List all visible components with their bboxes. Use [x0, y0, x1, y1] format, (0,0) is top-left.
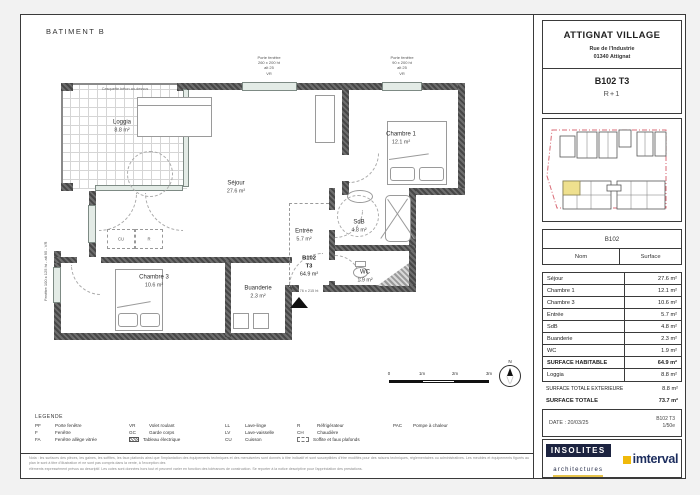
date-block: DATE : 20/03/25 B102 T3 1/50e: [542, 409, 682, 437]
room-label-chambre1: Chambre 112.1 m²: [386, 132, 416, 147]
scale-tick: 3m: [486, 371, 492, 376]
table-unit-header: B102: [542, 229, 682, 249]
kitchen-cooktop-box: CU: [107, 229, 135, 249]
scale-tick: 2m: [452, 371, 458, 376]
floor-plan: Porte fenêtre 260 x 200 ht alt 25 VR Por…: [37, 55, 519, 397]
compass-needle-icon: [507, 376, 513, 384]
entry-door-dim: 76 x 215 ht: [300, 289, 319, 293]
window-chambre3-left: [53, 267, 61, 303]
legend-item: FFenêtre: [35, 430, 119, 435]
legend-item: PFPorte fenêtre: [35, 423, 119, 428]
kitchen-label-r: R: [136, 237, 162, 242]
legend-item: CUCuisson: [225, 437, 287, 442]
pillow: [118, 313, 138, 327]
pillow: [140, 313, 160, 327]
legend-column: PACPompe à chaleur: [393, 423, 465, 442]
table-row: SdB4.8 m²: [543, 321, 681, 333]
scale-segment: [422, 380, 455, 383]
scale-tick: 0: [388, 371, 390, 376]
open-boundary-sejour-entree: [289, 203, 290, 285]
col-name: Nom: [543, 249, 620, 264]
title-block: ATTIGNAT VILLAGE Rue de l'Industrie 0134…: [542, 20, 682, 114]
door-swing-arc: [99, 193, 137, 231]
table-row: Loggia8.8 m²: [543, 369, 681, 381]
north-label: N: [508, 359, 511, 364]
fine-print: Nota : les surfaces des pièces, les gain…: [29, 456, 529, 472]
legend-title: LEGENDE: [35, 414, 505, 420]
dining-table: [127, 151, 173, 197]
legend-item: VRVolet roulant: [129, 423, 215, 428]
washing-machine: [233, 313, 249, 329]
unit-title: B102 T3: [543, 76, 681, 86]
entry-marker-triangle: [290, 297, 308, 308]
legend-item: GCGarde corps: [129, 430, 215, 435]
technical-shaft: [377, 263, 409, 286]
kitchen-fridge-box: R: [135, 229, 163, 249]
drawing-sheet: BATIMENT B Porte fenêtre 260 x 200 ht al…: [20, 14, 686, 479]
highlighted-unit: [563, 181, 580, 195]
table-row-surface-habitable: SURFACE HABITABLE64.9 m²: [543, 357, 681, 369]
legend-item: LVLave-vaisselle: [225, 430, 287, 435]
door-swing-arc: [71, 265, 101, 295]
legend-item: PACPompe à chaleur: [393, 423, 465, 428]
wall-sejour-chambre3: [54, 257, 77, 263]
date-label: DATE : 20/03/25: [549, 420, 588, 426]
unit-tag: B102 T3 64.9 m²: [300, 256, 318, 279]
wall-segment: [61, 183, 73, 191]
legend-column: PFPorte fenêtre FFenêtre FAFenêtre allèg…: [35, 423, 119, 442]
col-surface: Surface: [620, 249, 681, 264]
soffite-icon: [297, 437, 309, 442]
legend-item: RRéfrigérateur: [297, 423, 383, 428]
wall-top: [187, 83, 465, 90]
site-plan-svg: [543, 119, 681, 221]
door-swing-arc: [349, 153, 379, 183]
wall-sdb-wc: [335, 245, 415, 251]
scale-bar: 0 1m 2m 3m: [389, 371, 489, 387]
room-label-chambre3: Chambre 310.6 m²: [139, 275, 169, 290]
annotation-porte-fenetre-left: Porte fenêtre 260 x 200 ht alt 25 VR: [257, 55, 280, 76]
column-divider: [533, 15, 534, 478]
batiment-label: BATIMENT B: [46, 27, 105, 36]
table-row: Séjour27.6 m²: [543, 273, 681, 285]
tv-unit: [315, 95, 335, 143]
legend-column: RRéfrigérateur CHChaudière Soffite et fa…: [297, 423, 383, 442]
annotation-casquette: Casquette béton au-dessus: [102, 87, 148, 91]
north-compass: N: [499, 365, 521, 387]
sheet-reference: B102 T3 1/50e: [656, 416, 675, 431]
annotation-porte-fenetre-right: Porte fenêtre 90 x 200 ht alt 25 VR: [390, 55, 413, 76]
pillow: [390, 167, 415, 181]
table-column-headers: Nom Surface: [542, 248, 682, 265]
sofa-back: [137, 97, 212, 106]
wall-right-chambre1: [458, 83, 465, 195]
floor-level: R+1: [543, 89, 681, 98]
toilet-tank: [355, 261, 366, 267]
table-row: WC1.9 m²: [543, 345, 681, 357]
divider: [543, 68, 681, 69]
project-title: ATTIGNAT VILLAGE: [543, 30, 681, 41]
table-row: Chambre 112.1 m²: [543, 285, 681, 297]
room-label-wc: WC1.9 m²: [357, 270, 372, 285]
site-plan-box: [542, 118, 682, 222]
imterval-square-icon: [623, 456, 631, 464]
legend-item: CHChaudière: [297, 430, 383, 435]
total-row: SURFACE TOTALE73.7 m²: [542, 395, 682, 407]
wall-chambre1-left: [342, 83, 349, 155]
table-row: Entrée5.7 m²: [543, 309, 681, 321]
total-exterior-row: SURFACE TOTALE EXTERIEURE8.8 m²: [542, 383, 682, 395]
site-buildings: [560, 130, 666, 209]
imterval-logo: imterval: [623, 452, 679, 466]
scale-segment: [389, 380, 422, 383]
wall-buanderie-right: [285, 285, 292, 340]
kitchen-label-cu: CU: [108, 237, 134, 242]
legend-column: LLLave-linge LVLave-vaisselle CUCuisson: [225, 423, 287, 442]
wall-segment: [61, 83, 73, 91]
wall-entree-sdb: [329, 281, 335, 292]
wall-entree-sdb: [329, 188, 335, 210]
legend-column: VRVolet roulant GCGarde corps Tableau él…: [129, 423, 215, 442]
room-label-entree: Entrée5.7 m²: [295, 229, 313, 244]
legend-item: Soffite et faux plafonds: [297, 437, 383, 442]
wall-step: [409, 188, 465, 195]
room-label-sdb: SdB4.8 m²: [351, 220, 366, 235]
project-address: Rue de l'Industrie 01340 Attignat: [543, 45, 681, 61]
legend-item: Tableau électrique: [129, 437, 215, 442]
wall-buanderie-left: [225, 261, 231, 337]
legend-item: FAFenêtre allège vitrée: [35, 437, 119, 442]
room-label-buanderie: Buanderie2.3 m²: [244, 286, 271, 301]
insolites-logo: INSOLITES architectures: [546, 440, 611, 476]
footer-divider: [21, 453, 533, 454]
room-label-sejour: Séjour27.6 m²: [227, 181, 245, 196]
door-swing-arc: [145, 193, 183, 231]
window-sejour-top: [242, 82, 297, 91]
compass-needle-icon: [507, 368, 513, 376]
legend: LEGENDE PFPorte fenêtre FFenêtre FAFenêt…: [35, 414, 505, 442]
scale-tick: 1m: [419, 371, 425, 376]
loggia-left-rail: [61, 83, 63, 191]
open-boundary-sejour-entree: [289, 203, 329, 204]
window-sejour-left: [88, 205, 96, 243]
annotation-fenetre-left: Fenêtre 100 x 125 ht - alt 95 - VR: [43, 242, 48, 301]
tableau-electrique-icon: [129, 437, 139, 442]
room-label-loggia: Loggia8.8 m²: [113, 120, 131, 135]
loggia-top-rail: [61, 83, 189, 85]
wall-bottom-wc: [323, 285, 416, 292]
pillow: [419, 167, 444, 181]
scale-segment: [455, 380, 489, 383]
wall-bottom-left: [54, 333, 292, 340]
surface-table: Séjour27.6 m² Chambre 112.1 m² Chambre 3…: [542, 272, 682, 382]
logo-block: INSOLITES architectures imterval: [542, 439, 682, 478]
table-row: Chambre 310.6 m²: [543, 297, 681, 309]
dryer: [253, 313, 269, 329]
legend-item: LLLave-linge: [225, 423, 287, 428]
window-chambre1-top: [382, 82, 422, 91]
table-row: Buanderie2.3 m²: [543, 333, 681, 345]
wall-sejour-chambre3: [101, 257, 292, 263]
